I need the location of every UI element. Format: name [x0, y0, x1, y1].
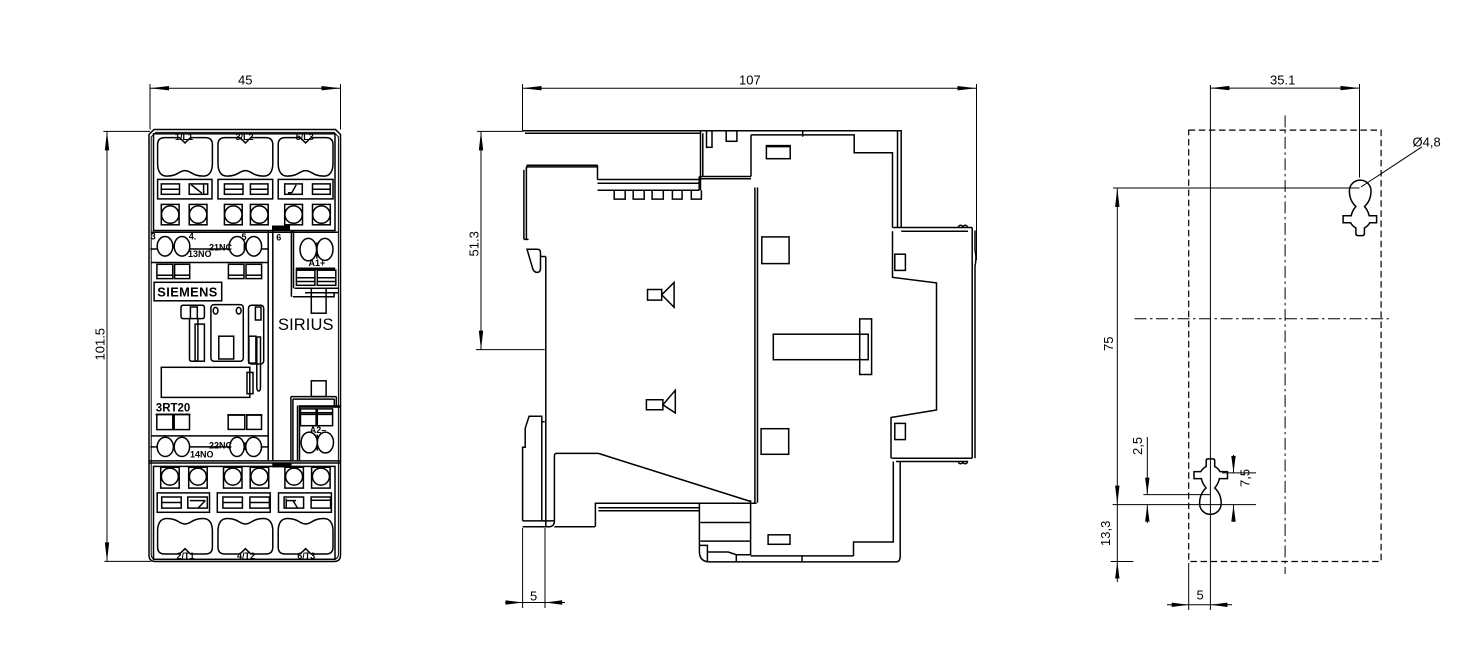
svg-text:13NO: 13NO: [188, 249, 212, 259]
svg-text:4/T2: 4/T2: [237, 551, 255, 561]
svg-text:45: 45: [238, 73, 252, 88]
svg-text:35.1: 35.1: [1270, 73, 1295, 88]
svg-text:101.5: 101.5: [93, 328, 108, 361]
svg-text:2,5: 2,5: [1130, 437, 1145, 455]
svg-text:13,3: 13,3: [1098, 521, 1113, 546]
svg-text:3RT20: 3RT20: [156, 403, 191, 415]
svg-text:2/T1: 2/T1: [177, 551, 195, 561]
svg-text:SIEMENS: SIEMENS: [157, 284, 217, 299]
svg-text:Ø4,8: Ø4,8: [1413, 134, 1441, 149]
svg-text:5: 5: [530, 589, 537, 604]
svg-text:107: 107: [739, 73, 761, 88]
svg-text:7,5: 7,5: [1238, 469, 1253, 487]
svg-text:21NC: 21NC: [209, 243, 233, 253]
svg-text:51.3: 51.3: [467, 231, 482, 256]
svg-text:A1+: A1+: [309, 258, 326, 268]
svg-text:SIRIUS: SIRIUS: [278, 316, 334, 334]
svg-text:5/L3: 5/L3: [296, 132, 314, 142]
svg-text:6/T3: 6/T3: [297, 551, 315, 561]
svg-text:5: 5: [1197, 588, 1204, 603]
svg-text:6: 6: [276, 232, 281, 242]
svg-text:1/L1: 1/L1: [175, 132, 193, 142]
svg-text:3/L2: 3/L2: [236, 132, 254, 142]
svg-text:75: 75: [1101, 337, 1116, 351]
svg-text:14NO: 14NO: [190, 450, 214, 460]
